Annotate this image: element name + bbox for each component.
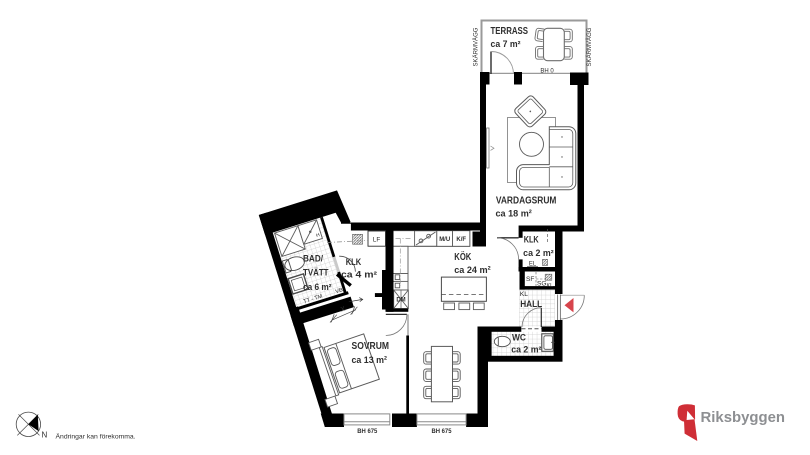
svg-text:KL: KL <box>520 291 528 298</box>
svg-text:M/U: M/U <box>439 237 450 243</box>
svg-text:SKÄRMVÄGG: SKÄRMVÄGG <box>585 28 593 67</box>
svg-text:Riksbyggen: Riksbyggen <box>701 409 786 426</box>
svg-text:ca 7 m²: ca 7 m² <box>491 39 521 49</box>
svg-text:ca 4 m²: ca 4 m² <box>341 270 377 280</box>
svg-text:SG: SG <box>537 280 547 287</box>
svg-text:KÖK: KÖK <box>454 250 472 263</box>
svg-text:ca 2 m²: ca 2 m² <box>511 345 541 355</box>
svg-text:ca 6 m²: ca 6 m² <box>303 282 332 292</box>
svg-text:BH 675: BH 675 <box>357 428 377 435</box>
svg-text:SKÄRMVÄGG: SKÄRMVÄGG <box>472 28 480 67</box>
svg-text:KL: KL <box>547 283 554 289</box>
svg-text:K/F: K/F <box>456 237 466 243</box>
svg-text:KLK: KLK <box>524 235 540 245</box>
svg-text:SF: SF <box>526 276 534 283</box>
svg-text:LF: LF <box>373 237 381 244</box>
svg-text:SOVRUM: SOVRUM <box>352 341 390 352</box>
svg-text:VARDAGSRUM: VARDAGSRUM <box>496 195 557 206</box>
svg-text:DM: DM <box>396 298 405 304</box>
svg-text:ca 13 m²: ca 13 m² <box>352 354 387 365</box>
svg-text:BH 0: BH 0 <box>540 69 554 75</box>
svg-text:BAD/: BAD/ <box>303 252 323 263</box>
svg-text:N: N <box>42 431 48 440</box>
svg-text:ca 24 m²: ca 24 m² <box>454 264 491 275</box>
svg-text:ca 2 m²: ca 2 m² <box>523 248 554 258</box>
svg-text:TERRASS: TERRASS <box>491 26 529 37</box>
svg-text:ca 18 m²: ca 18 m² <box>496 207 532 218</box>
svg-text:TVÄTT: TVÄTT <box>303 267 329 278</box>
svg-text:Ändringar kan förekomma.: Ändringar kan förekomma. <box>56 432 136 440</box>
svg-text:HALL: HALL <box>520 298 542 309</box>
svg-text:BH 675: BH 675 <box>432 428 452 435</box>
svg-text:WC: WC <box>512 332 527 342</box>
